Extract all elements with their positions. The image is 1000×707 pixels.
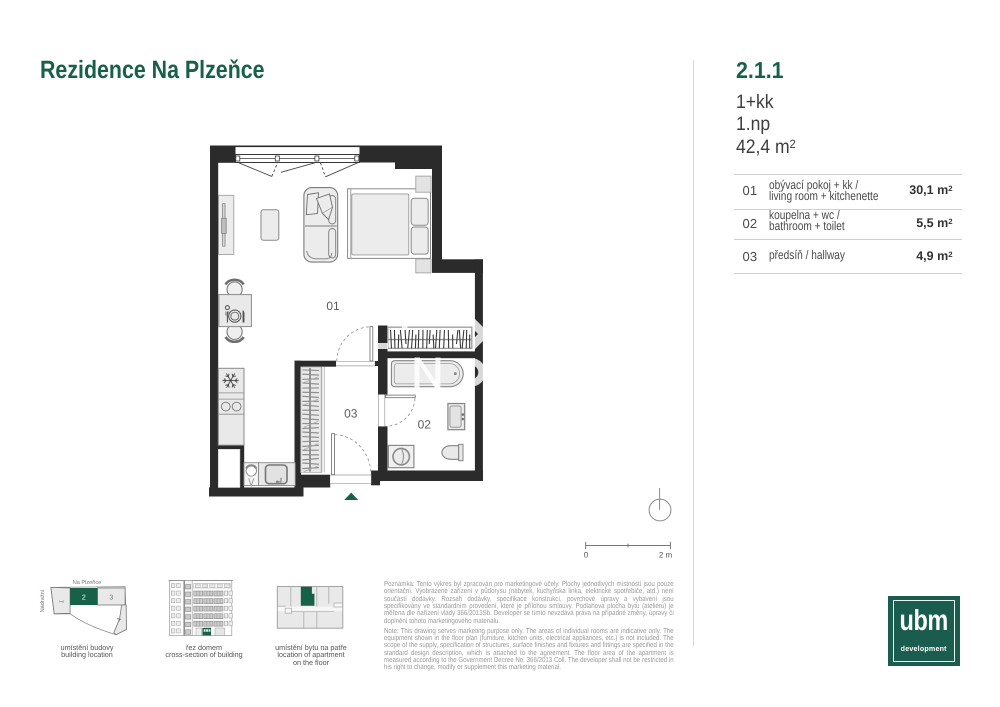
- svg-text:0: 0: [584, 551, 589, 560]
- svg-text:03: 03: [344, 406, 358, 420]
- svg-text:01: 01: [326, 299, 340, 313]
- svg-text:2 m: 2 m: [659, 551, 673, 560]
- svg-text:2: 2: [82, 594, 86, 601]
- svg-text:Na Plzeňce: Na Plzeňce: [73, 579, 102, 586]
- svg-text:3: 3: [109, 594, 113, 601]
- svg-text:Nádražní: Nádražní: [39, 589, 46, 612]
- svg-text:02: 02: [418, 418, 432, 432]
